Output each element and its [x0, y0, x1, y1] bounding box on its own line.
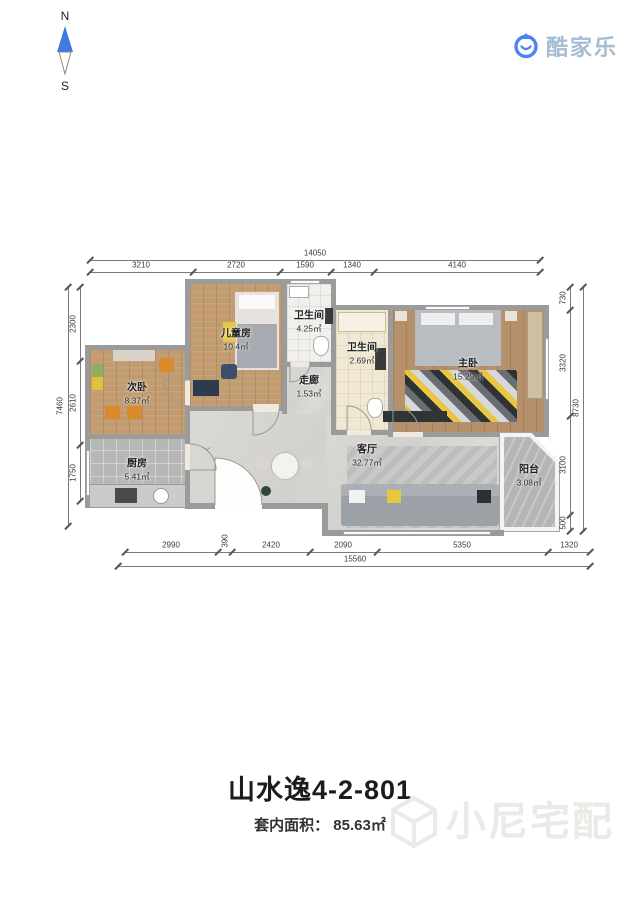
dim-tick [64, 522, 71, 529]
watermark: 小尼宅配 [388, 796, 614, 848]
label-master-bedroom: 主卧15.29㎡ [453, 358, 483, 381]
dim-left-seg: 2300 [69, 315, 78, 333]
dim-left-seg: 2610 [69, 394, 78, 412]
label-corridor: 走廊1.53㎡ [296, 375, 321, 398]
door-arcs [85, 248, 600, 593]
dim-tick [76, 497, 83, 504]
label-balcony: 阳台3.08㎡ [516, 464, 541, 487]
compass-needle-icon [54, 24, 76, 78]
label-children-bedroom: 儿童房10.4㎡ [221, 328, 251, 351]
label-living-room: 客厅32.77㎡ [352, 444, 382, 467]
brand-logo: 酷家乐 [513, 30, 618, 62]
master-door-arc [393, 406, 419, 432]
entry-door-arc [215, 458, 262, 505]
entry-marker: ﹀ [203, 446, 211, 457]
label-bathroom-1: 卫生间4.25㎡ [294, 310, 324, 333]
dim-line-left-chain [80, 287, 81, 501]
children-door-arc [253, 409, 279, 435]
watermark-text: 小尼宅配 [446, 802, 614, 842]
dim-left-seg: 1750 [69, 464, 78, 482]
label-second-bedroom: 次卧8.37㎡ [124, 382, 149, 405]
compass-south-label: S [50, 80, 80, 92]
dim-left-total: 7460 [56, 397, 65, 415]
floor-plan: ﹀ 儿童房10.4㎡ 卫生间4.25㎡ 走廊1.53㎡ 卫生间2.69㎡ 主卧1… [85, 248, 600, 593]
bathroom2-door-arc [347, 406, 371, 430]
brand-logo-text: 酷家乐 [546, 30, 618, 62]
label-kitchen: 厨房5.41㎡ [124, 458, 149, 481]
second-door-arc [164, 380, 190, 406]
label-bathroom-2: 卫生间2.69㎡ [347, 342, 377, 365]
compass: N S [50, 10, 80, 92]
watermark-cube-icon [388, 796, 440, 848]
kujiale-logo-icon [513, 33, 539, 59]
compass-north-label: N [50, 10, 80, 22]
